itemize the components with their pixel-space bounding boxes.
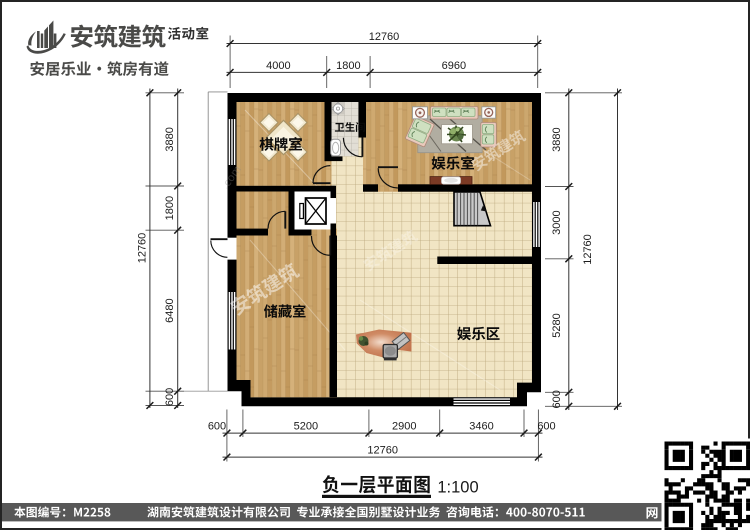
svg-text:2900: 2900: [392, 421, 416, 433]
svg-text:12760: 12760: [369, 31, 400, 43]
svg-text:600: 600: [537, 421, 555, 433]
svg-text:4000: 4000: [266, 60, 290, 72]
svg-text:12760: 12760: [582, 234, 594, 265]
svg-text:12760: 12760: [137, 233, 149, 264]
svg-text:3000: 3000: [551, 210, 563, 234]
svg-text:3460: 3460: [469, 421, 493, 433]
svg-text:12760: 12760: [367, 445, 398, 457]
svg-text:1800: 1800: [336, 60, 360, 72]
svg-text:600: 600: [164, 388, 176, 406]
svg-text:1800: 1800: [164, 196, 176, 220]
svg-text:6960: 6960: [442, 60, 466, 72]
svg-text:600: 600: [551, 390, 563, 408]
svg-text:1:100: 1:100: [437, 479, 478, 497]
svg-text:5200: 5200: [294, 421, 318, 433]
svg-text:6480: 6480: [164, 298, 176, 322]
svg-text:3880: 3880: [551, 127, 563, 151]
svg-text:600: 600: [208, 421, 226, 433]
svg-text:3880: 3880: [164, 127, 176, 151]
svg-text:5280: 5280: [551, 313, 563, 337]
